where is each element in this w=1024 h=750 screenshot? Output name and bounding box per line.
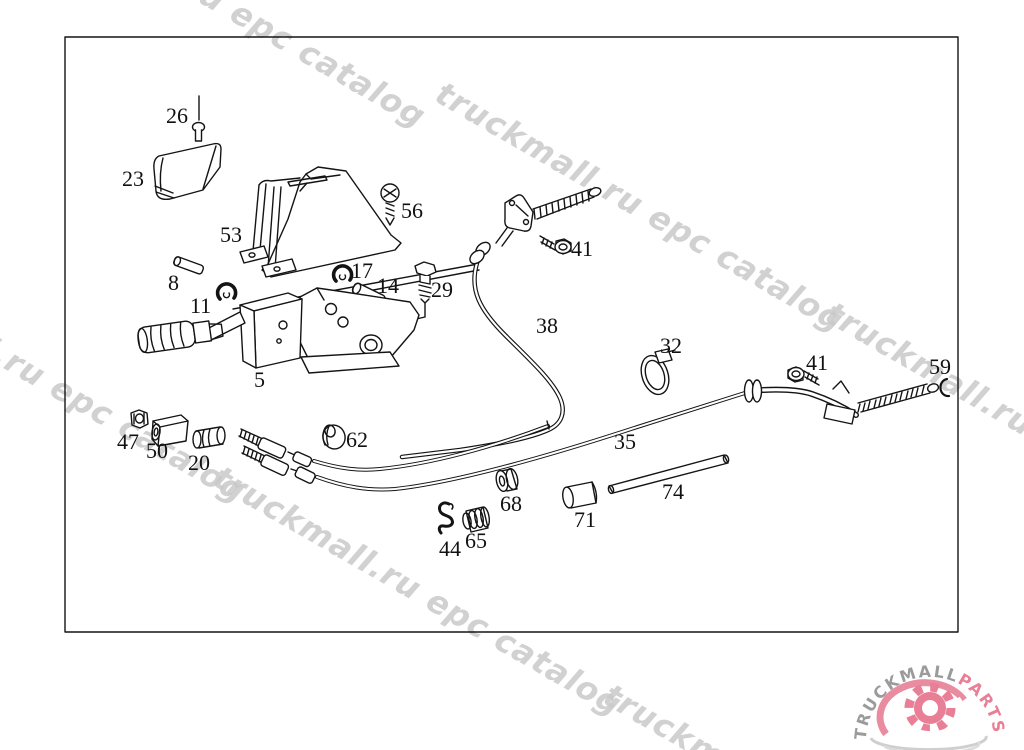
- part-label-41: 41: [571, 236, 593, 262]
- part-label-23: 23: [122, 166, 144, 192]
- truckmall-parts-logo: TRUCKMALLPARTS: [826, 638, 1024, 750]
- part-label-17: 17: [351, 258, 373, 284]
- part-label-32: 32: [660, 333, 682, 359]
- part-label-65: 65: [465, 528, 487, 554]
- part-label-26: 26: [166, 103, 188, 129]
- part-label-38: 38: [536, 313, 558, 339]
- part-label-20: 20: [188, 450, 210, 476]
- part-label-14: 14: [377, 273, 399, 299]
- part-label-41: 41: [806, 350, 828, 376]
- part-label-8: 8: [168, 270, 179, 296]
- part-label-47: 47: [117, 429, 139, 455]
- part-label-29: 29: [431, 277, 453, 303]
- parts-diagram-page: truckmall.ru epc catalog truckmall.ru ep…: [0, 0, 1024, 750]
- part-label-68: 68: [500, 491, 522, 517]
- part-label-53: 53: [220, 222, 242, 248]
- part-label-71: 71: [574, 507, 596, 533]
- part-label-11: 11: [190, 293, 211, 319]
- part-label-62: 62: [346, 427, 368, 453]
- part-label-5: 5: [254, 367, 265, 393]
- part-label-56: 56: [401, 198, 423, 224]
- part-label-44: 44: [439, 536, 461, 562]
- part-label-59: 59: [929, 354, 951, 380]
- part-label-50: 50: [146, 438, 168, 464]
- part-label-74: 74: [662, 479, 684, 505]
- part-label-35: 35: [614, 429, 636, 455]
